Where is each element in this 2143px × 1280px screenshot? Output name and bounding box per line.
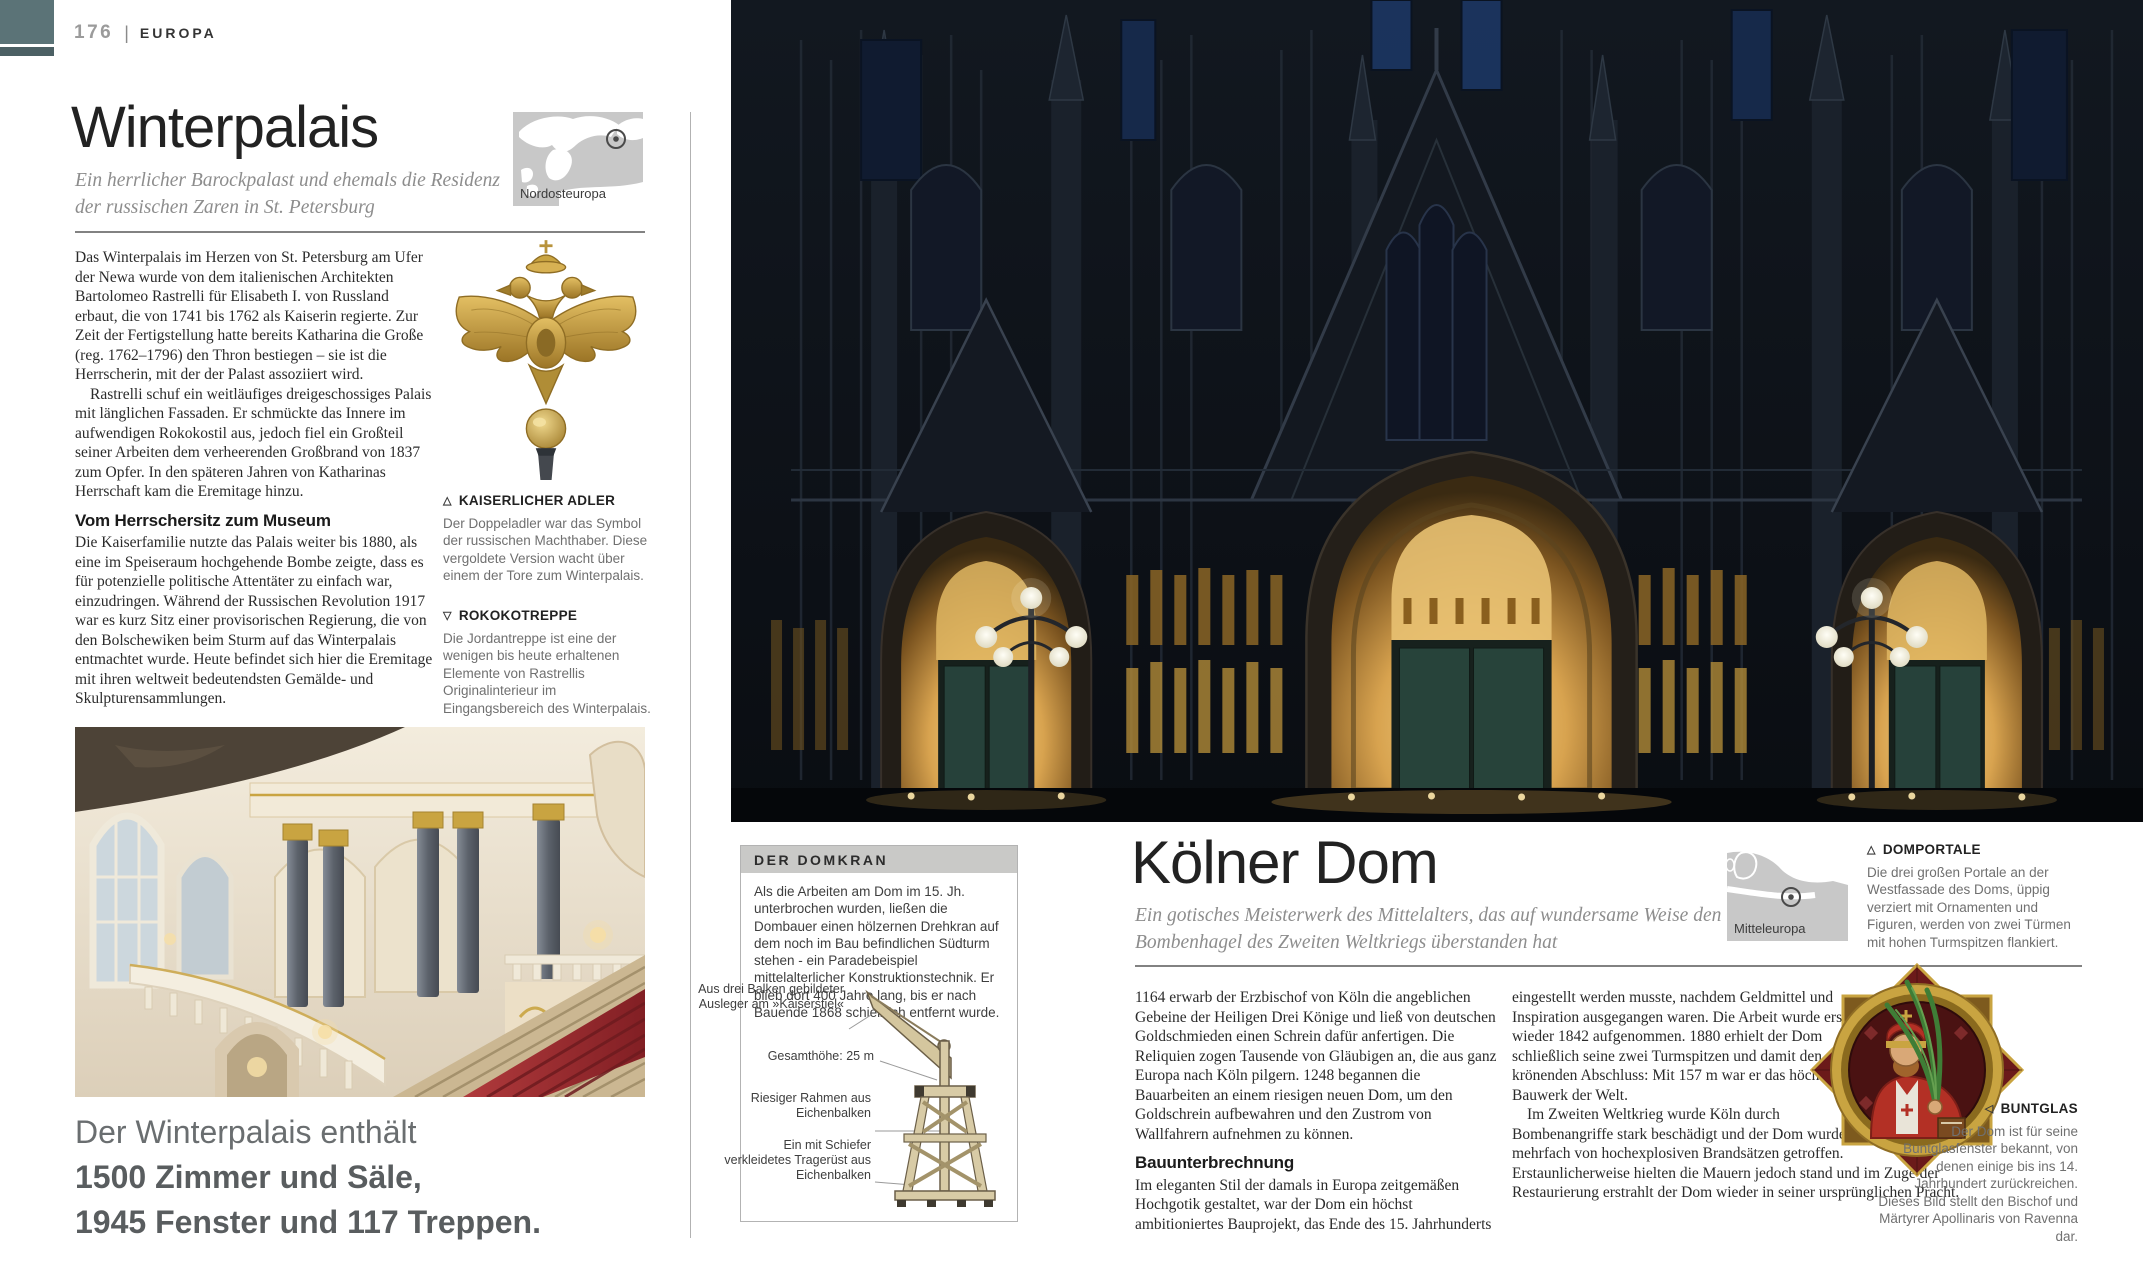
eagle-caption: △ KAISERLICHER ADLER Der Doppeladler war… [443,492,659,585]
staircase-caption: ▽ ROKOKOTREPPE Die Jordantreppe ist eine… [443,607,659,717]
staircase-caption-heading: ▽ ROKOKOTREPPE [443,607,659,627]
stained-glass-caption-title: BUNTGLAS [2001,1101,2078,1116]
page-number: 176 [74,22,113,44]
page-column-rule [690,112,691,1238]
imperial-eagle-photo [448,236,644,486]
portals-caption-title: DOMPORTALE [1883,842,1981,857]
crane-label-rahmen: Riesiger Rahmen aus Eichenbalken [721,1091,871,1121]
staircase-caption-title: ROKOKOTREPPE [459,608,577,623]
book-spread: 176 | EUROPA Winterpalais Ein herrlicher… [0,0,2143,1280]
nordosteuropa-map-thumbnail: Nordosteuropa [513,112,643,206]
portals-caption: △ DOMPORTALE Die drei großen Portale an … [1867,841,2075,951]
header-separator: | [124,23,129,44]
stained-glass-caption: ◁ BUNTGLAS Der Dom ist für seine Buntgla… [1878,1100,2078,1245]
eagle-caption-text: Der Doppeladler war das Symbol der russi… [443,515,659,585]
staircase-caption-text: Die Jordantreppe ist eine der wenigen bi… [443,630,659,718]
caption-left-triangle-icon: ◁ [1985,1103,1994,1115]
caption-up-triangle-icon: △ [1867,844,1876,856]
winterpalais-title: Winterpalais [71,94,378,161]
koelnerdom-paragraph-2: Im eleganten Stil der damals in Europa z… [1135,1176,1497,1235]
koelnerdom-subtitle: Ein gotisches Meisterwerk des Mittelalte… [1135,902,1795,956]
page-edge-tab [0,0,54,44]
koelnerdom-title: Kölner Dom [1131,828,1438,897]
crane-label-hoehe: Gesamthöhe: 25 m [724,1049,874,1064]
section-label: EUROPA [140,25,217,41]
jordan-staircase-photo [75,727,645,1097]
fact-line-3: 1945 Fenster und 117 Treppen. [75,1200,541,1245]
winterpalais-body: Das Winterpalais im Herzen von St. Peter… [75,248,435,709]
portals-caption-heading: △ DOMPORTALE [1867,841,2075,861]
winterpalais-paragraph-1: Das Winterpalais im Herzen von St. Peter… [75,248,435,385]
nordosteuropa-map-label: Nordosteuropa [520,186,606,201]
eagle-caption-title: KAISERLICHER ADLER [459,493,615,508]
domkran-info-box: DER DOMKRAN Als die Arbeiten am Dom im 1… [740,845,1018,1222]
koelnerdom-paragraph-1: 1164 erwarb der Erzbischof von Köln die … [1135,988,1497,1144]
winterpalais-fact-statement: Der Winterpalais enthält 1500 Zimmer und… [75,1110,541,1245]
winterpalais-paragraph-2: Rastrelli schuf ein weitläufiges dreiges… [75,385,435,502]
page-header: 176 | EUROPA [74,22,217,44]
crane-label-tragegeruest: Ein mit Schiefer verkleidetes Tragerüst … [721,1138,871,1183]
winterpalais-subtitle: Ein herrlicher Barockpalast und ehemals … [75,167,515,221]
double-eagle-graphic [448,236,644,486]
eagle-caption-heading: △ KAISERLICHER ADLER [443,492,659,512]
fact-line-2: 1500 Zimmer und Säle, [75,1155,541,1200]
portals-caption-text: Die drei großen Portale an der Westfassa… [1867,864,2075,952]
stained-glass-caption-heading: ◁ BUNTGLAS [1878,1100,2078,1120]
cathedral-graphic [731,0,2143,822]
winterpalais-subheading: Vom Herrschersitz zum Museum [75,511,435,531]
koelnerdom-subheading: Bauunterbrechnung [1135,1153,1497,1173]
mitteleuropa-map-label: Mitteleuropa [1734,921,1806,936]
fact-line-1: Der Winterpalais enthält [75,1110,541,1155]
caption-up-triangle-icon: △ [443,495,452,507]
staircase-graphic [75,727,645,1097]
section-divider [75,231,645,233]
domkran-box-title: DER DOMKRAN [741,846,1017,873]
crane-label-ausleger: Aus drei Balken gebildeter Ausleger am »… [694,982,844,1012]
caption-down-triangle-icon: ▽ [443,610,452,622]
koelner-dom-facade-photo [731,0,2143,822]
koelnerdom-column-1: 1164 erwarb der Erzbischof von Köln die … [1135,988,1497,1234]
winterpalais-paragraph-3: Die Kaiserfamilie nutzte das Palais weit… [75,533,435,709]
page-edge-tab-strip [0,47,54,56]
stained-glass-caption-text: Der Dom ist für seine Buntglasfenster be… [1878,1123,2078,1246]
mitteleuropa-map-thumbnail: Mitteleuropa [1727,849,1848,941]
